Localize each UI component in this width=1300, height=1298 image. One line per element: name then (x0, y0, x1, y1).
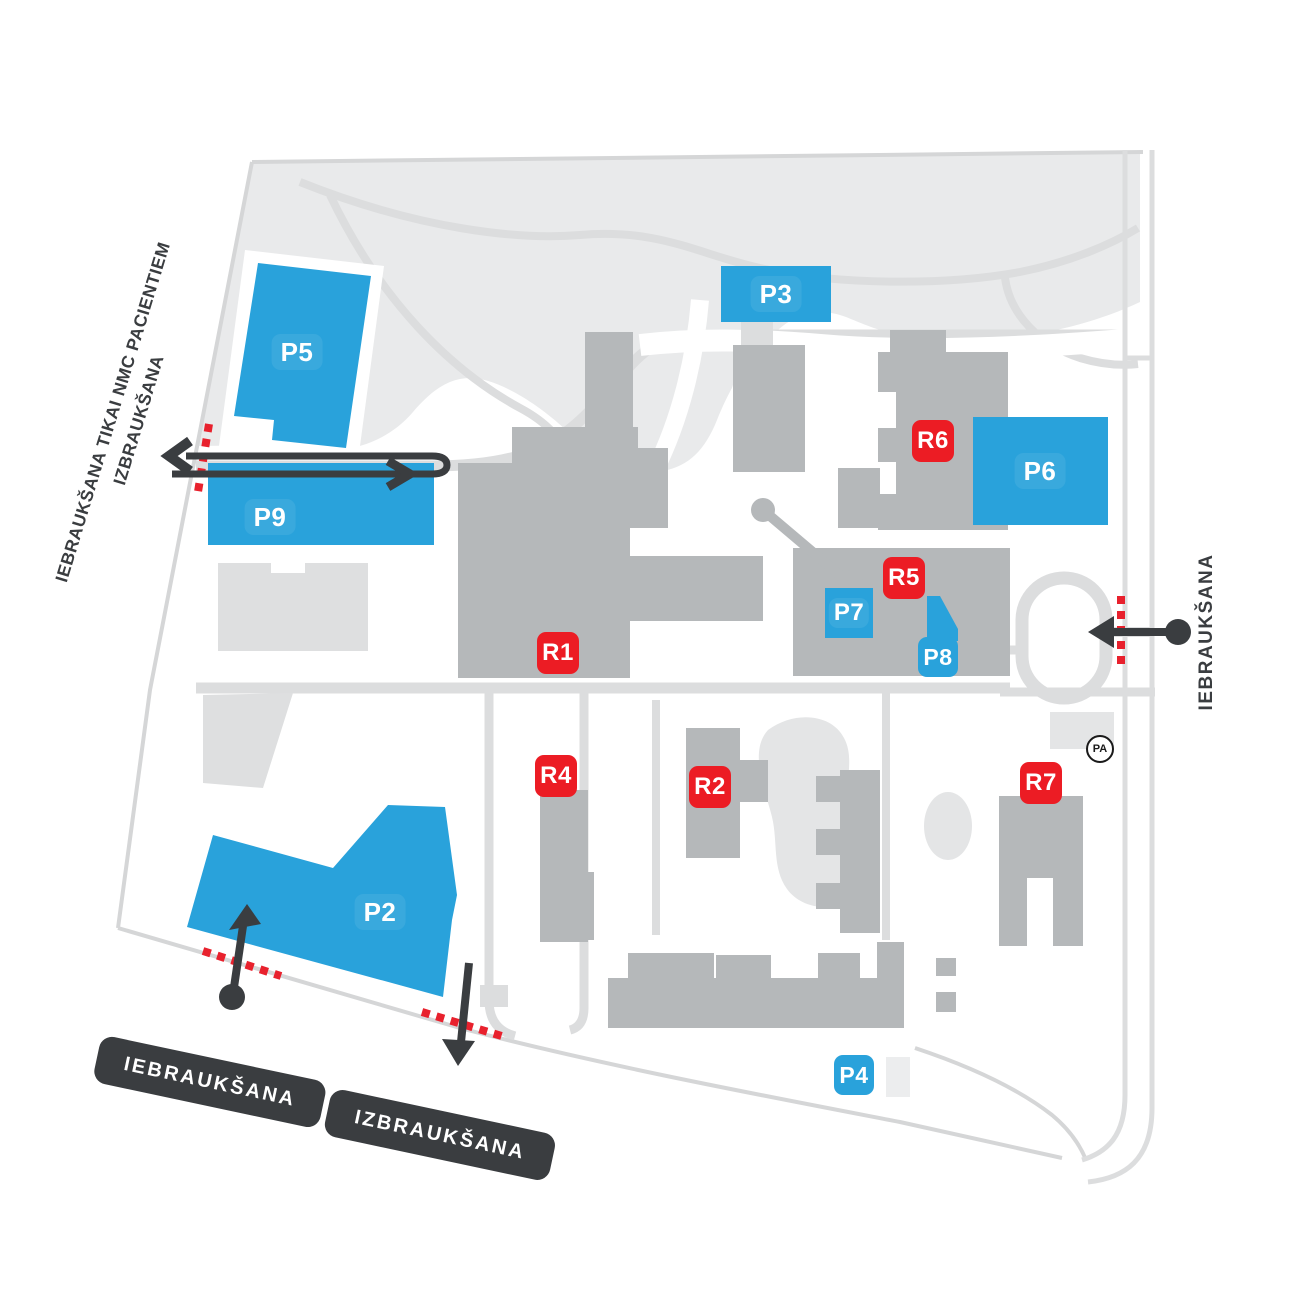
r2-chip: R2 (689, 766, 731, 808)
south-building-bump (716, 955, 771, 980)
p3-zone-label: P3 (751, 276, 802, 312)
pa-parking-house-marker: PA (1086, 735, 1114, 763)
road-entry-loop (1022, 578, 1106, 698)
east-entry-arrow-dot (1165, 619, 1191, 645)
r7-chip: R7 (1020, 762, 1062, 804)
comb-building (840, 770, 880, 933)
south-building-bump (818, 953, 860, 980)
road-vertical-west (489, 688, 515, 1036)
p5-zone-label: P5 (272, 334, 323, 370)
r6-chip: R6 (912, 420, 954, 462)
p2-zone (187, 805, 457, 997)
r6-notch (878, 462, 896, 494)
warehouse-notch (271, 563, 305, 573)
r4-building-foot (560, 872, 594, 940)
warehouse-building (218, 563, 368, 651)
south-building-bump (628, 953, 714, 980)
north-clinic-building (733, 345, 805, 472)
south-building-tower (877, 942, 904, 1028)
south-building-bit (936, 992, 956, 1012)
east-gate-note: IEBRAUKŠANA (1196, 554, 1218, 711)
small-structure (886, 1057, 910, 1097)
r6-notch (878, 392, 896, 428)
comb-tab (816, 776, 842, 802)
r2-building-step (740, 760, 768, 802)
road-p3-stub (741, 320, 773, 348)
comb-tab (816, 829, 842, 855)
small-structure (480, 985, 508, 1007)
south-building-bit (936, 958, 956, 976)
r5-chip: R5 (883, 557, 925, 599)
south-exit-arrowhead (442, 1039, 475, 1066)
r7-building (999, 796, 1083, 946)
p8-chip: P8 (918, 637, 958, 677)
road-north-band (640, 340, 1125, 349)
south-long-building (608, 978, 878, 1028)
r6-building-top (890, 330, 946, 354)
west-lot (203, 693, 293, 788)
main-hospital-annex (628, 448, 668, 528)
main-hospital-spine (585, 332, 633, 467)
p4-chip: P4 (834, 1055, 874, 1095)
campus-parking-map: P5 P9 P2 P3 P6 P7 P4 P8 R1 R2 R4 R5 R6 R… (0, 0, 1300, 1298)
r1-chip: R1 (537, 632, 579, 674)
p7-zone-label: P7 (829, 598, 869, 628)
boundary-bottom-road (118, 928, 1062, 1158)
r4-chip: R4 (535, 755, 577, 797)
p9-zone-label: P9 (245, 499, 296, 535)
corridor-node (751, 498, 775, 522)
comb-tab (816, 883, 842, 909)
lawn-oval (924, 792, 972, 860)
p6-zone-label: P6 (1015, 453, 1066, 489)
r6-annex (838, 468, 880, 528)
p2-zone-label: P2 (355, 894, 406, 930)
p2-entry-arrow-dot (219, 984, 245, 1010)
main-hospital-east-arm (628, 556, 763, 621)
